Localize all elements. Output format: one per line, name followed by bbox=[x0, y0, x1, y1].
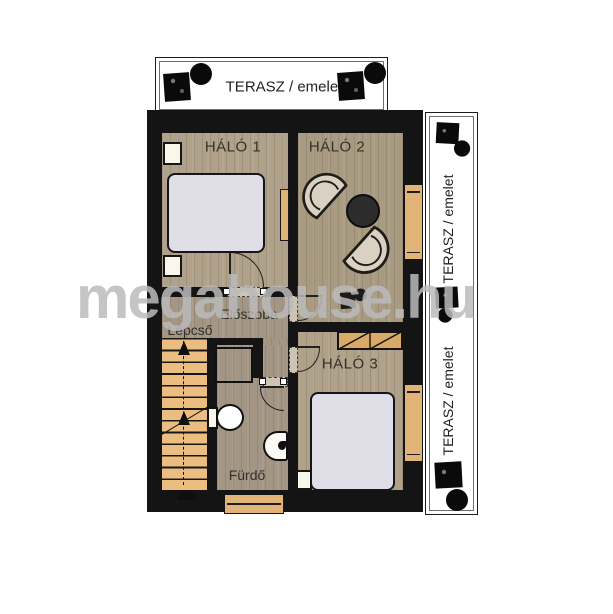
potted-plant-icon bbox=[433, 117, 475, 159]
bathroom-window bbox=[224, 494, 284, 514]
bed-halo3 bbox=[310, 392, 395, 491]
door-post bbox=[260, 288, 267, 295]
door-threshold-halo2 bbox=[289, 296, 298, 322]
toilet-bowl bbox=[216, 404, 244, 431]
door-threshold-halo3 bbox=[289, 347, 298, 373]
indoor-plant-icon bbox=[338, 283, 368, 317]
sink-tap-icon bbox=[278, 441, 286, 450]
terrace-door-halo3 bbox=[404, 384, 423, 462]
bed-halo1 bbox=[167, 173, 265, 253]
room-label-furdo: Fürdő bbox=[229, 467, 266, 483]
room-label-lepcso: Lépcső bbox=[167, 322, 212, 338]
terrace-top-label: TERASZ / emelet bbox=[226, 79, 343, 96]
door-post bbox=[223, 288, 230, 295]
nightstand bbox=[163, 142, 182, 165]
room-label-halo3: HÁLÓ 3 bbox=[322, 356, 378, 373]
stair-up-arrow-icon bbox=[178, 341, 190, 355]
terrace-right-label-upper: TERASZ / emelet bbox=[440, 175, 456, 284]
interior-wall bbox=[253, 338, 263, 378]
wardrobe bbox=[337, 331, 403, 350]
potted-plant-icon bbox=[162, 61, 214, 107]
potted-plant-icon bbox=[432, 458, 474, 512]
room-label-eloszoba: Előszoba bbox=[220, 306, 278, 322]
door-post bbox=[259, 378, 266, 385]
potted-plant-icon bbox=[336, 60, 388, 106]
room-label-halo2: HÁLÓ 2 bbox=[309, 139, 365, 156]
nightstand bbox=[296, 470, 312, 490]
terrace-door-halo2 bbox=[404, 184, 423, 260]
shower bbox=[215, 347, 253, 383]
terrace-right-label-lower: TERASZ / emelet bbox=[440, 347, 456, 456]
floor-plan-canvas: TERASZ / emelet TERASZ / emelet TERASZ /… bbox=[0, 0, 613, 614]
door-post bbox=[280, 378, 287, 385]
room-label-halo1: HÁLÓ 1 bbox=[205, 139, 261, 156]
potted-plant-icon bbox=[429, 282, 471, 326]
nightstand bbox=[163, 255, 182, 277]
